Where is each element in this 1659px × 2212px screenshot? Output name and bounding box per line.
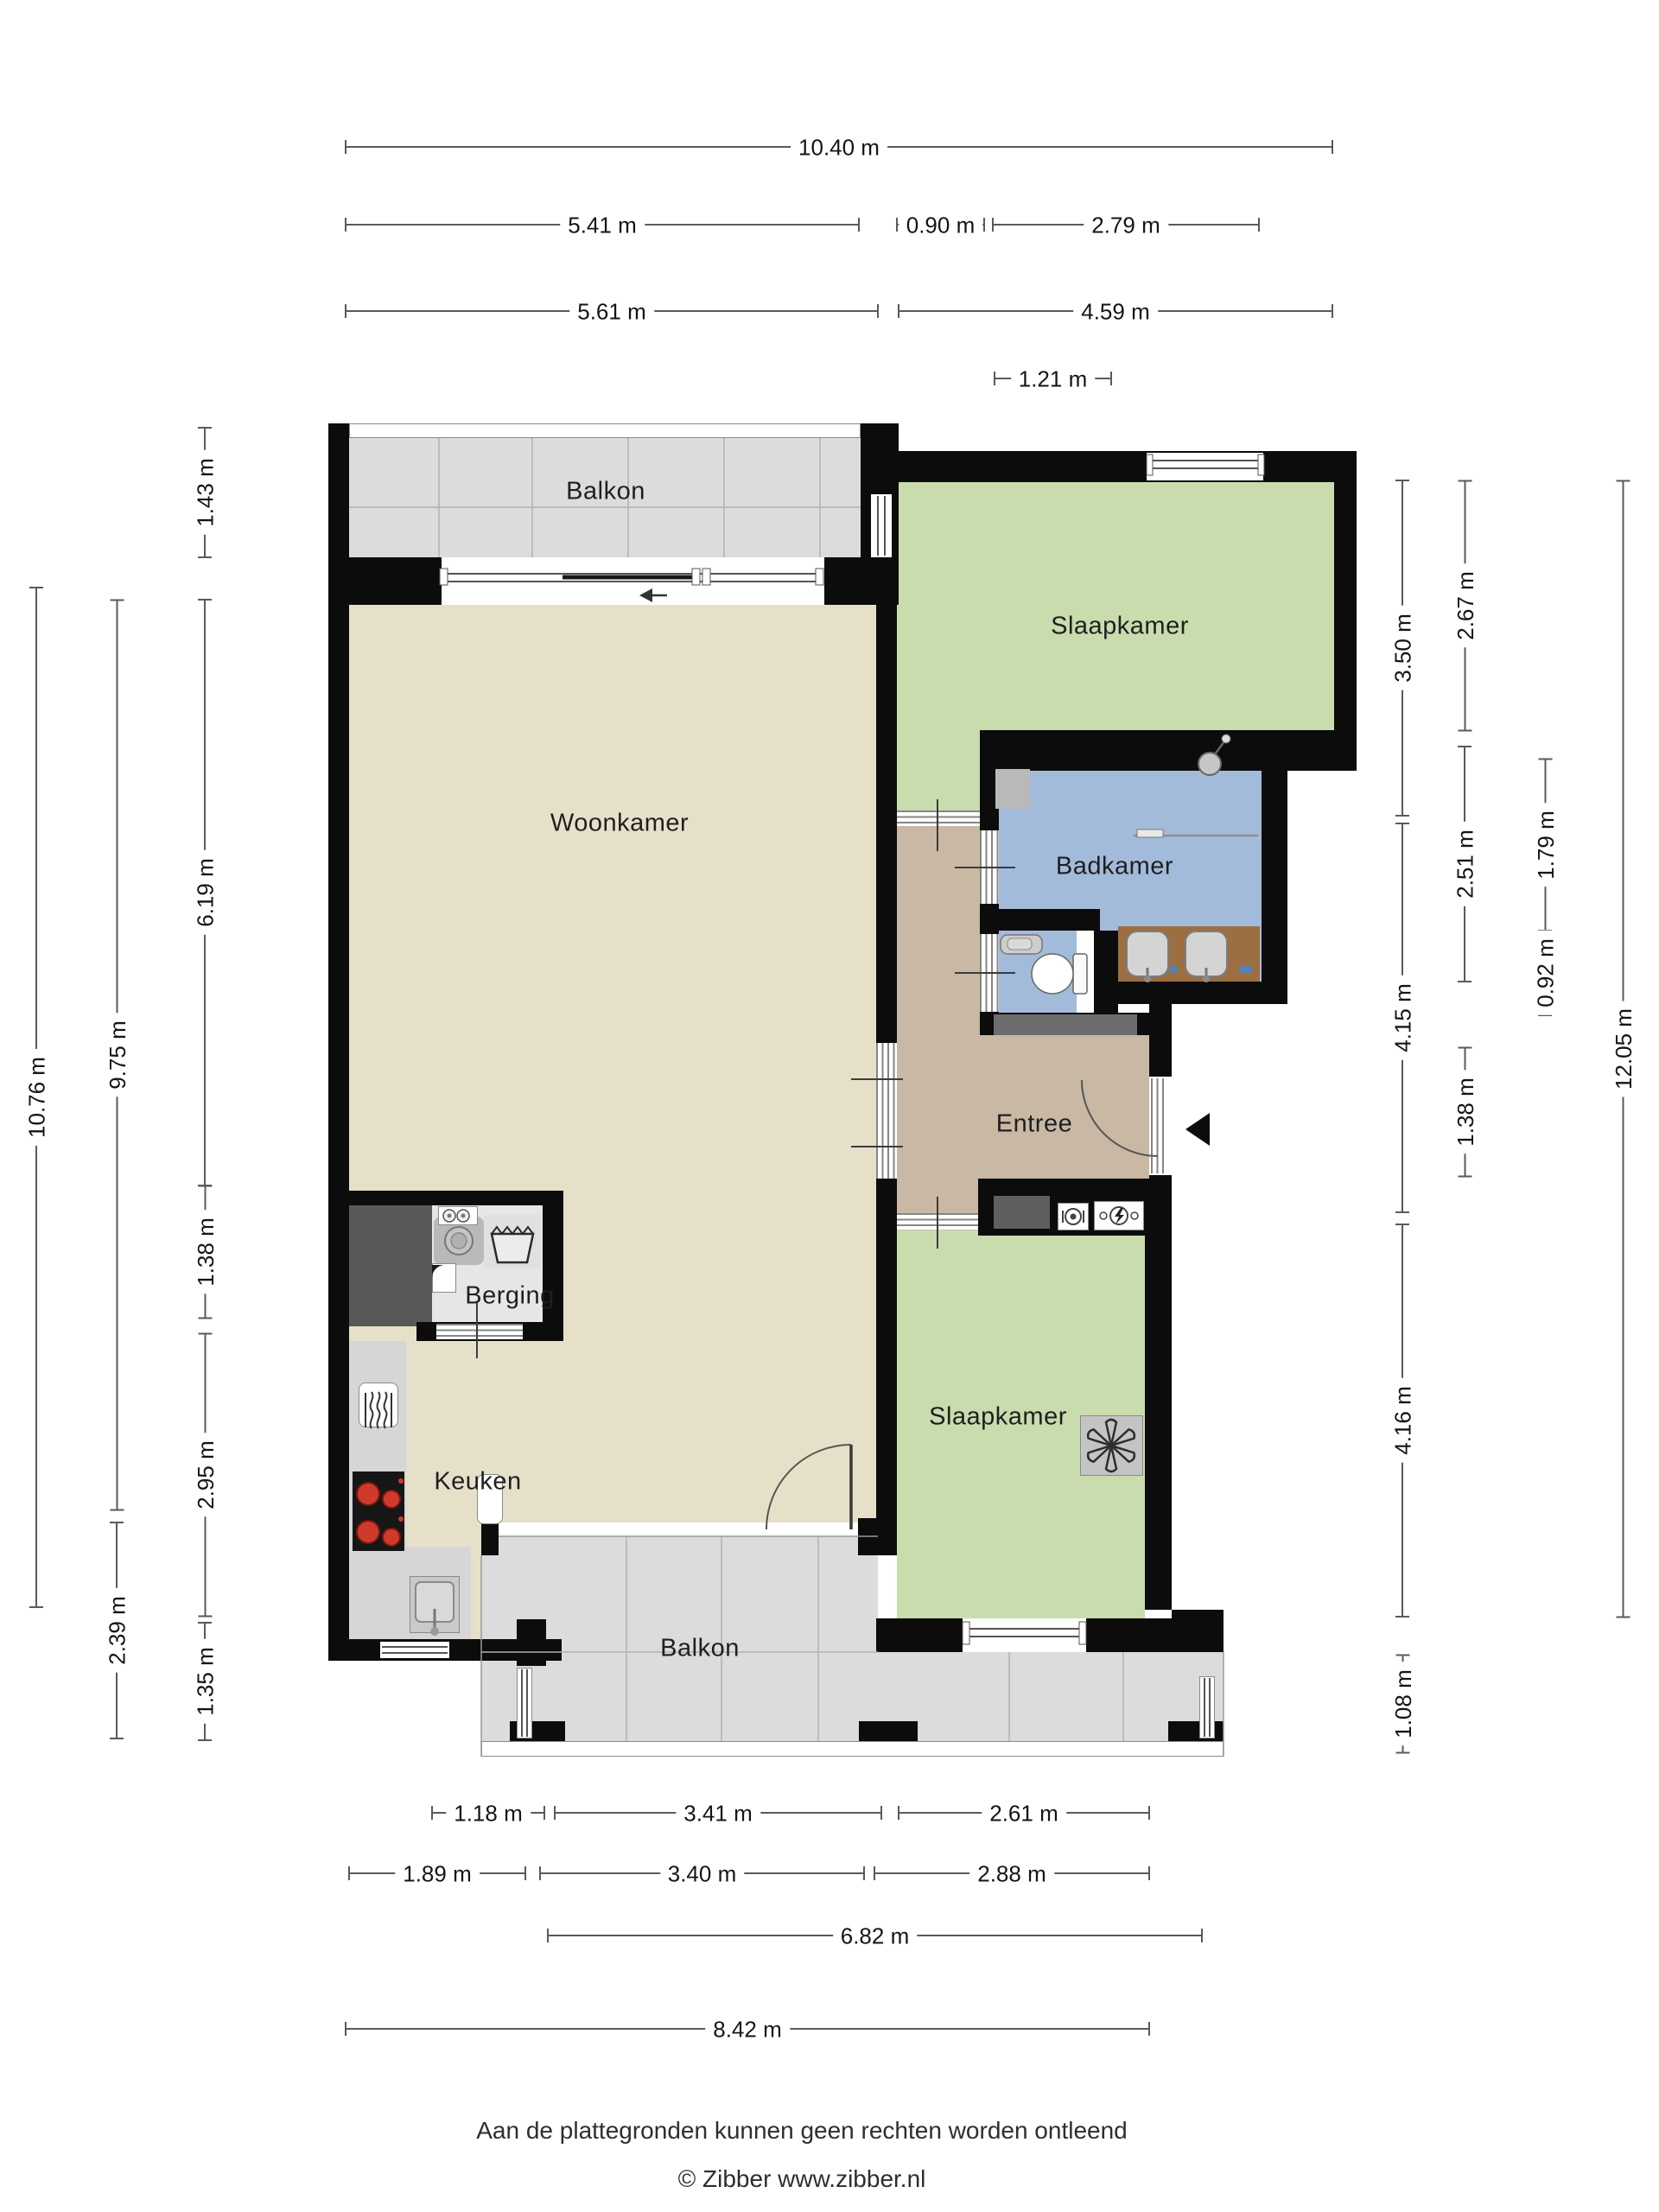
dimension-label: 0.92 m — [1533, 931, 1560, 1015]
room-label-woonkamer: Woonkamer — [550, 811, 689, 836]
plan-annotations — [0, 0, 1659, 2212]
dimension-label: 1.38 m — [193, 1210, 219, 1294]
room-label-balkon-top: Balkon — [566, 480, 645, 505]
water-meter-icon — [1063, 1209, 1084, 1224]
cv-unit-icon — [432, 1265, 445, 1278]
balcony-bottom-grid — [481, 1536, 1224, 1757]
room-label-slaapkamer-top: Slaapkamer — [1051, 614, 1189, 639]
footer-copyright: © Zibber www.zibber.nl — [678, 2165, 926, 2193]
ventilation-fan-icon — [1086, 1420, 1136, 1471]
dimension-label: 4.15 m — [1390, 976, 1417, 1060]
entrance-arrow-icon — [1185, 1113, 1210, 1146]
dimension-label: 2.95 m — [193, 1433, 219, 1517]
room-label-berging: Berging — [465, 1284, 554, 1309]
shower-icon — [1134, 734, 1258, 837]
dimension-label: 1.35 m — [193, 1639, 219, 1724]
footer-disclaimer: Aan de plattegronden kunnen geen rechten… — [476, 2117, 1127, 2145]
dimension-label: 5.41 m — [560, 213, 645, 239]
slide-direction-arrow-icon — [639, 588, 667, 602]
toilet-icon — [1032, 954, 1087, 994]
dimension-label: 8.42 m — [705, 2017, 790, 2044]
dimension-label: 1.43 m — [193, 450, 219, 535]
front-door-arc — [1082, 1080, 1158, 1156]
dimension-label: 4.59 m — [1073, 299, 1158, 326]
dimension-label: 2.39 m — [105, 1588, 131, 1673]
room-label-badkamer: Badkamer — [1056, 855, 1173, 880]
dimension-label: 9.75 m — [105, 1013, 131, 1097]
hand-basin-icon — [1001, 935, 1042, 954]
dimension-label: 1.08 m — [1390, 1662, 1417, 1746]
dimension-label: 3.40 m — [660, 1861, 745, 1888]
dimension-label: 6.19 m — [193, 850, 219, 935]
kitchen-sink-icon — [416, 1582, 454, 1636]
dimension-label: 3.41 m — [676, 1801, 760, 1827]
oven-icon — [365, 1392, 391, 1428]
dimension-label: 1.38 m — [1452, 1070, 1479, 1154]
room-label-balkon-bottom: Balkon — [660, 1637, 740, 1662]
dimension-label: 2.61 m — [982, 1801, 1066, 1827]
dimension-label: 1.79 m — [1533, 803, 1560, 887]
sliding-door-icon — [440, 569, 823, 585]
balcony-door-arc — [766, 1445, 851, 1529]
electric-meter-icon — [1100, 1207, 1138, 1224]
dimension-label: 1.89 m — [395, 1861, 480, 1888]
dimension-label: 1.18 m — [446, 1801, 531, 1827]
dimension-label: 6.82 m — [833, 1923, 918, 1950]
dimension-label: 5.61 m — [569, 299, 654, 326]
dimension-label: 12.05 m — [1611, 1001, 1637, 1097]
dimension-label: 10.40 m — [791, 135, 887, 162]
room-label-slaapkamer-bottom: Slaapkamer — [929, 1405, 1067, 1430]
window-rails — [382, 461, 1262, 1737]
dimension-label: 2.67 m — [1452, 563, 1479, 648]
laundry-basket-icon — [492, 1227, 533, 1262]
boiler-icon — [443, 1210, 469, 1222]
vanity-sinks-icon — [1127, 931, 1252, 982]
dimension-label: 0.90 m — [899, 213, 983, 239]
door-ticks — [477, 799, 1015, 1358]
dimension-label: 3.50 m — [1390, 606, 1417, 690]
dimension-label: 2.51 m — [1452, 822, 1479, 906]
room-label-keuken: Keuken — [434, 1470, 521, 1495]
dimension-label: 1.21 m — [1011, 366, 1096, 393]
dimension-label: 2.88 m — [969, 1861, 1054, 1888]
dimension-label: 4.16 m — [1390, 1378, 1417, 1463]
dimension-label: 10.76 m — [24, 1049, 51, 1146]
floorplan-page: Balkon Slaapkamer Woonkamer Badkamer Ent… — [0, 0, 1659, 2212]
washing-machine-icon — [445, 1227, 473, 1255]
cooktop-burners-icon — [357, 1478, 404, 1546]
dimension-label: 2.79 m — [1084, 213, 1168, 239]
room-label-entree: Entree — [996, 1112, 1072, 1137]
